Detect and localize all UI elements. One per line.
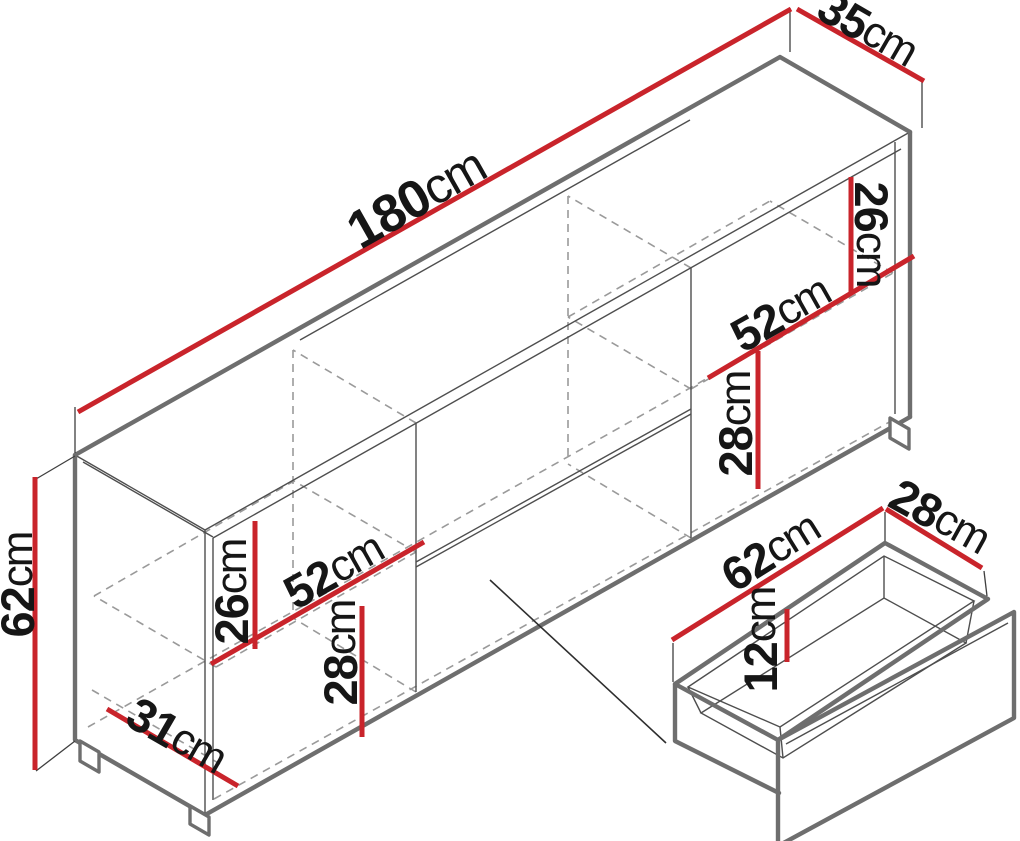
diagram-canvas: 180cm 35cm 62cm 26cm 52cm 28cm 31cm 26cm… — [0, 0, 1020, 841]
cabinet-outline — [75, 57, 910, 815]
cabinet-drawing — [75, 57, 910, 835]
dim-label-left-upper-compartment: 26cm — [205, 540, 258, 645]
dim-label-right-shelf-width: 52cm — [721, 264, 838, 362]
dimension-labels: 180cm 35cm 62cm 26cm 52cm 28cm 31cm 26cm… — [0, 0, 999, 784]
dim-label-drawer-width: 62cm — [711, 501, 828, 602]
furniture-dimension-diagram: 180cm 35cm 62cm 26cm 52cm 28cm 31cm 26cm… — [0, 0, 1020, 841]
dim-label-right-lower-compartment: 28cm — [709, 372, 762, 477]
cabinet-interior-lines — [75, 120, 910, 815]
dim-label-cabinet-width: 180cm — [337, 136, 495, 260]
cabinet-hidden-lines — [88, 196, 893, 799]
dim-label-left-lower-compartment: 28cm — [314, 601, 367, 706]
dim-label-base-inner-depth: 31cm — [118, 686, 235, 784]
dim-label-drawer-height: 12cm — [734, 588, 787, 693]
dim-label-cabinet-depth: 35cm — [809, 0, 926, 77]
dim-label-cabinet-height: 62cm — [0, 533, 44, 638]
dim-label-right-upper-compartment: 26cm — [846, 182, 899, 287]
